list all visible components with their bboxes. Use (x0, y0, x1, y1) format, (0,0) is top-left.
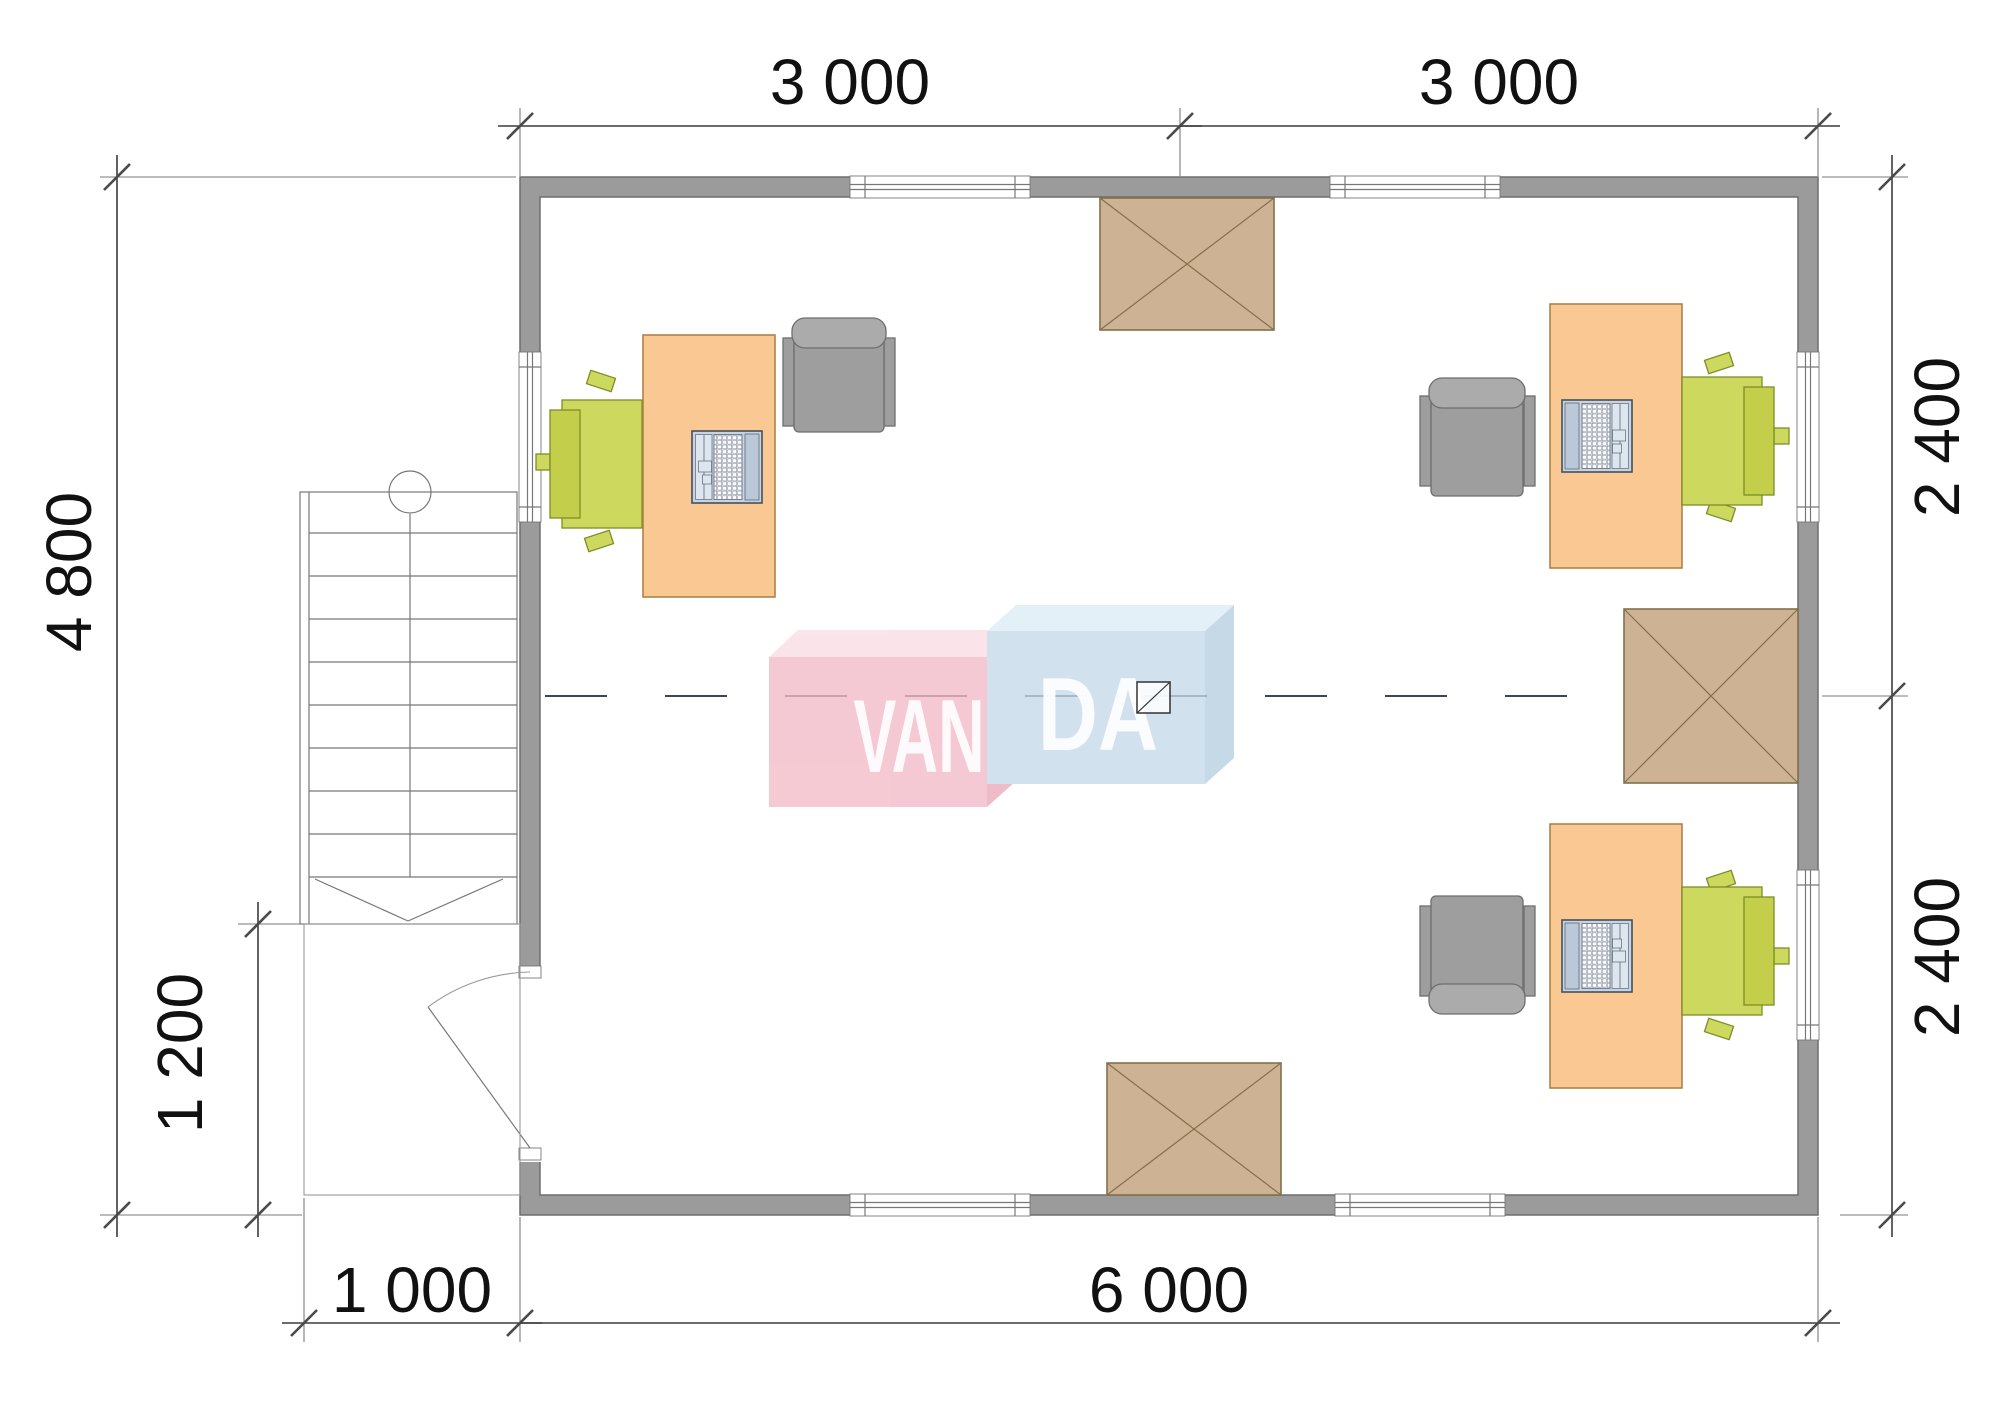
laptop-icon (1562, 400, 1632, 472)
window-top-left (850, 176, 1030, 198)
floor-plan-page: 3 000 3 000 4 800 1 200 (0, 0, 2000, 1410)
skylight-hatch-bottom (1107, 1063, 1281, 1195)
vanda-logo-text-van: VAN (853, 679, 984, 794)
workstation-bottom-right (1420, 824, 1789, 1088)
dimension-right-upper: 2 400 (1822, 155, 1973, 1237)
dim-label-right-lower: 2 400 (1901, 877, 1973, 1037)
dim-label-top-left: 3 000 (770, 46, 930, 118)
dim-label-left-overall: 4 800 (33, 492, 105, 652)
laptop-icon (692, 431, 762, 503)
visitor-chair-green (1682, 352, 1789, 521)
staircase (300, 471, 517, 924)
entry-door (428, 966, 541, 1162)
dimension-left-overall: 4 800 (33, 155, 516, 1237)
dim-label-right-upper: 2 400 (1901, 357, 1973, 517)
window-right-lower (1797, 870, 1819, 1040)
dimension-top-left: 3 000 (498, 46, 1202, 176)
window-top-right (1330, 176, 1500, 198)
skylight-hatch-right (1624, 609, 1798, 783)
window-left (519, 352, 541, 522)
office-chair-gray (1420, 378, 1535, 496)
office-chair-gray (783, 318, 895, 432)
entry-porch (304, 924, 520, 1195)
dim-label-top-right: 3 000 (1419, 46, 1579, 118)
dimension-left-entry: 1 200 (144, 902, 306, 1237)
window-bottom-left (850, 1194, 1030, 1216)
dimension-right-lower: 2 400 (1840, 877, 1973, 1228)
dimension-bottom-overall: 6 000 (520, 1217, 1840, 1342)
dim-label-left-entry: 1 200 (144, 973, 216, 1133)
floor-plan-drawing: 3 000 3 000 4 800 1 200 (0, 0, 2000, 1410)
door-leaf (428, 1007, 530, 1148)
visitor-chair-green (536, 370, 642, 551)
vanda-logo-text-da: DA (1038, 656, 1158, 772)
dimension-top-right: 3 000 (1180, 46, 1840, 176)
stair-arrow-icon (315, 879, 503, 921)
dim-label-bottom-overall: 6 000 (1089, 1254, 1249, 1326)
window-right-upper (1797, 352, 1819, 522)
workstation-top-right (1420, 304, 1789, 568)
window-bottom-right (1335, 1194, 1505, 1216)
door-swing-arc-icon (428, 972, 530, 1007)
skylight-hatch-top (1100, 198, 1274, 330)
dimension-bottom-entry: 1 000 (282, 1198, 542, 1342)
workstation-top-left (536, 318, 895, 597)
axis-marker-icon (1137, 682, 1170, 713)
dim-label-bottom-entry: 1 000 (332, 1254, 492, 1326)
